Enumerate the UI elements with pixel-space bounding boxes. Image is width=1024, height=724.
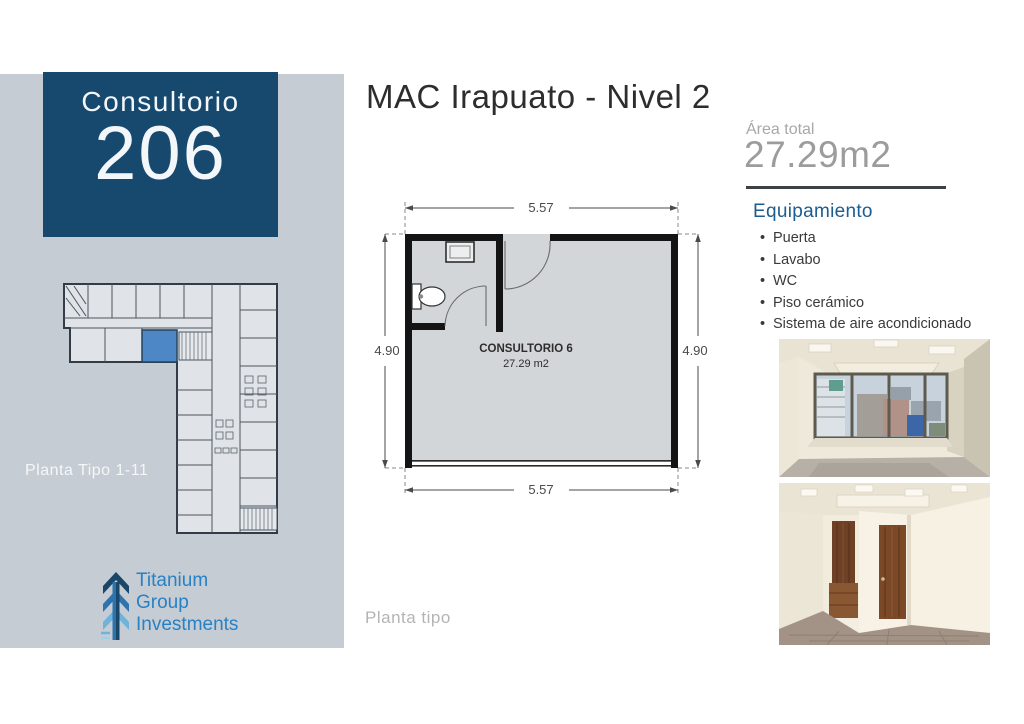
building-key-plan [60,280,280,536]
titanium-logo-icon [100,570,132,642]
unit-floor-plan: 5.57 5.57 4.90 4.90 [374,194,712,511]
logo-wordmark: Titanium Group Investments [136,570,238,642]
logo-line-2: Group [136,592,238,614]
plan-caption: Planta tipo [365,608,451,628]
building-outline [64,284,277,533]
room-area: 27.29 m2 [503,358,549,370]
door-opening [503,234,550,241]
equipment-item: WC [760,271,971,293]
room-name: CONSULTORIO 6 [479,343,573,355]
wood-door-center [879,525,906,619]
stairs-hatch-core [179,332,212,360]
interior-photo-doors-view [779,483,990,645]
page-title: MAC Irapuato - Nivel 2 [366,78,711,116]
mini-plan-caption: Planta Tipo 1-11 [25,462,148,480]
equipment-item: Lavabo [760,250,971,272]
dim-bottom: 5.57 [528,482,553,497]
window-city-view [815,374,947,438]
equipment-item: Sistema de aire acondicionado [760,314,971,336]
area-total-value: 27.29m2 [744,134,892,176]
brochure-page: Consultorio 206 [0,0,1024,724]
section-divider [746,186,946,189]
highlighted-unit-206 [142,330,177,362]
unit-number-card: Consultorio 206 [43,72,278,237]
equipment-item: Piso cerámico [760,293,971,315]
dim-right: 4.90 [682,343,707,358]
sink-fixture [446,242,474,262]
stairs-hatch-bottom [240,508,277,530]
interior-photo-window-view [779,339,990,477]
logo-line-3: Investments [136,614,238,636]
dim-left: 4.90 [374,343,399,358]
unit-number: 206 [43,118,278,190]
equipment-item: Puerta [760,228,971,250]
logo-line-1: Titanium [136,570,238,592]
equipment-title: Equipamiento [753,201,873,223]
wood-door-left [829,521,858,618]
sidebar: Consultorio 206 [0,74,344,648]
window-line [412,460,671,467]
company-logo: Titanium Group Investments [100,570,238,642]
equipment-list: Puerta Lavabo WC Piso cerámico Sistema d… [760,228,971,336]
dim-top: 5.57 [528,200,553,215]
